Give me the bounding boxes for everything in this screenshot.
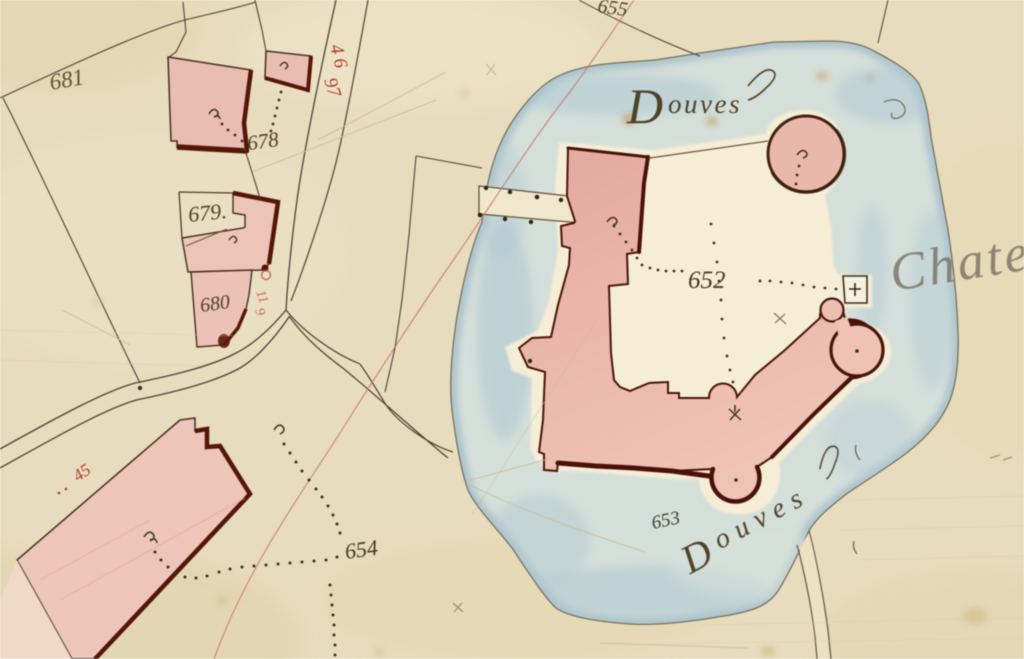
svg-text:679.: 679. xyxy=(187,198,228,227)
svg-text:654: 654 xyxy=(343,535,379,564)
svg-text:680: 680 xyxy=(199,291,232,317)
svg-text:D: D xyxy=(626,78,663,134)
svg-text:.678: .678 xyxy=(240,127,280,156)
svg-text:ouves: ouves xyxy=(668,89,742,119)
svg-text:652: 652 xyxy=(688,267,726,294)
